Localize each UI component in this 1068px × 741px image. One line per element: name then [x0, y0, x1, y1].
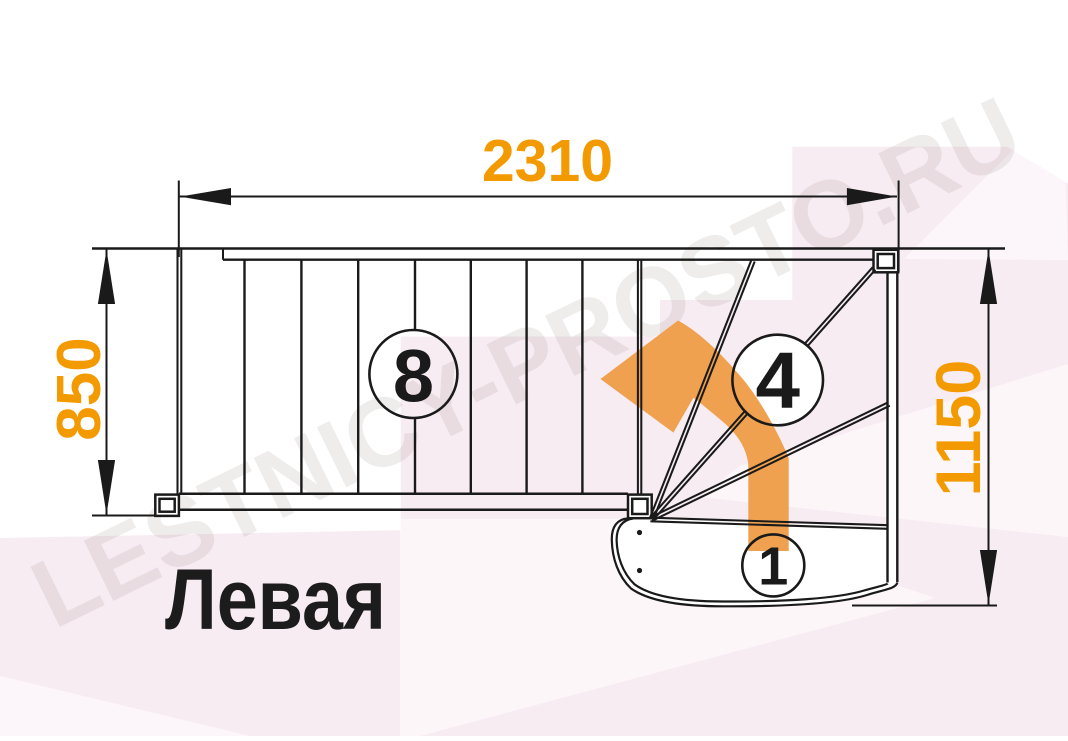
svg-text:8: 8 — [393, 335, 434, 418]
svg-text:1: 1 — [758, 537, 788, 597]
svg-text:2310: 2310 — [482, 128, 613, 194]
svg-text:850: 850 — [45, 337, 114, 440]
svg-text:Левая: Левая — [165, 552, 386, 648]
svg-text:1150: 1150 — [924, 360, 994, 497]
svg-text:4: 4 — [755, 336, 800, 425]
